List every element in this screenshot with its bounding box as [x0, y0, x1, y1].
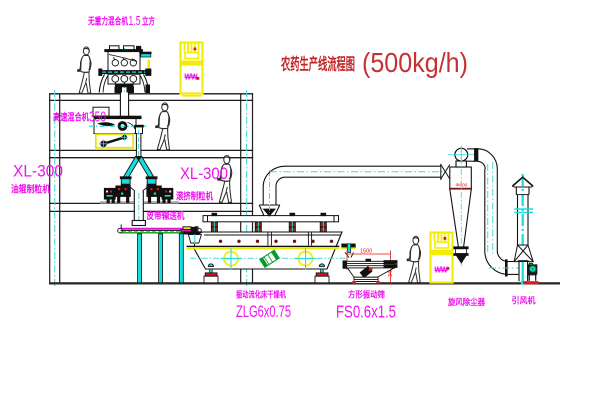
- svg-text:350: 350: [89, 110, 106, 126]
- svg-text:XL-300: XL-300: [13, 163, 63, 181]
- svg-text:油辊制粒机: 油辊制粒机: [11, 184, 50, 196]
- svg-text:1.5: 1.5: [129, 14, 141, 28]
- svg-text:ZLG6x0.75: ZLG6x0.75: [236, 302, 291, 321]
- svg-text:XL-300: XL-300: [180, 165, 228, 183]
- svg-text:无重力混合机: 无重力混合机: [87, 16, 128, 28]
- svg-text:₩₩: ₩₩: [185, 72, 199, 82]
- svg-text:滚挤制粒机: 滚挤制粒机: [176, 191, 213, 203]
- svg-text:振动流化床干燥机: 振动流化床干燥机: [236, 290, 286, 300]
- svg-text:旋风除尘器: 旋风除尘器: [447, 297, 485, 307]
- svg-text:皮带输送机: 皮带输送机: [146, 210, 185, 222]
- svg-text:方形振动筛: 方形振动筛: [348, 290, 385, 300]
- svg-text:FS0.6x1.5: FS0.6x1.5: [336, 302, 396, 322]
- svg-text:立方: 立方: [142, 16, 155, 28]
- svg-text:引风机: 引风机: [512, 296, 536, 306]
- svg-text:₩₩: ₩₩: [435, 265, 449, 275]
- svg-text:(500kg/h): (500kg/h): [362, 47, 468, 78]
- svg-text:1500: 1500: [360, 249, 372, 255]
- svg-text:高速混合机: 高速混合机: [53, 112, 89, 124]
- svg-text:农药生产线流程图: 农药生产线流程图: [280, 55, 355, 74]
